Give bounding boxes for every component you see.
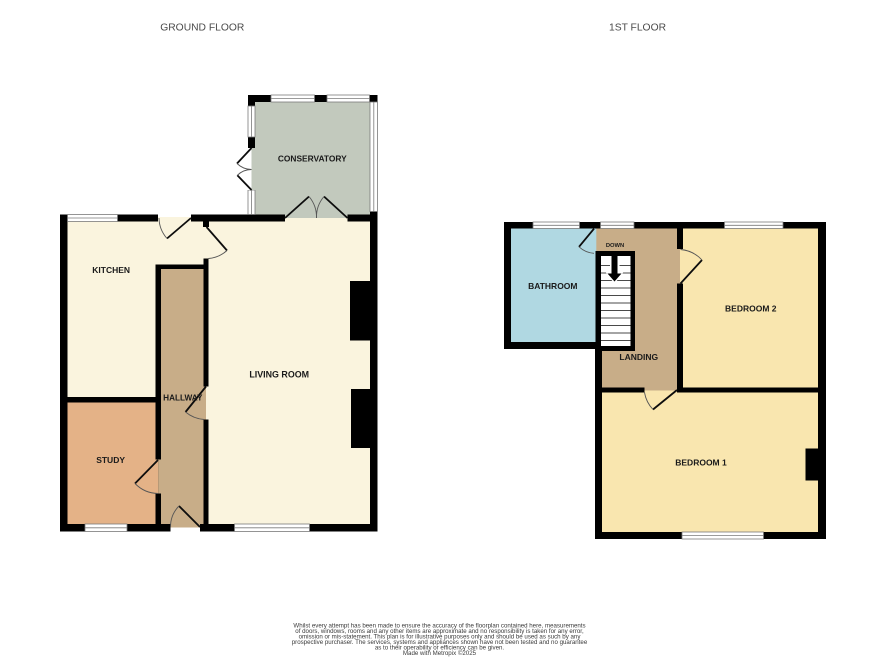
svg-text:DOWN: DOWN [606, 243, 624, 249]
svg-text:KITCHEN: KITCHEN [92, 265, 130, 275]
svg-text:BATHROOM: BATHROOM [528, 281, 577, 291]
svg-text:HALLWAY: HALLWAY [163, 394, 203, 403]
svg-text:LANDING: LANDING [619, 352, 658, 362]
svg-text:1ST FLOOR: 1ST FLOOR [609, 22, 666, 33]
svg-text:BEDROOM 1: BEDROOM 1 [675, 457, 727, 467]
svg-text:GROUND FLOOR: GROUND FLOOR [160, 22, 244, 33]
svg-text:STUDY: STUDY [96, 455, 125, 465]
svg-text:LIVING ROOM: LIVING ROOM [249, 370, 309, 380]
svg-text:Made with Metropix ©2025: Made with Metropix ©2025 [403, 650, 477, 657]
svg-text:BEDROOM 2: BEDROOM 2 [725, 304, 777, 314]
svg-text:CONSERVATORY: CONSERVATORY [278, 154, 347, 164]
